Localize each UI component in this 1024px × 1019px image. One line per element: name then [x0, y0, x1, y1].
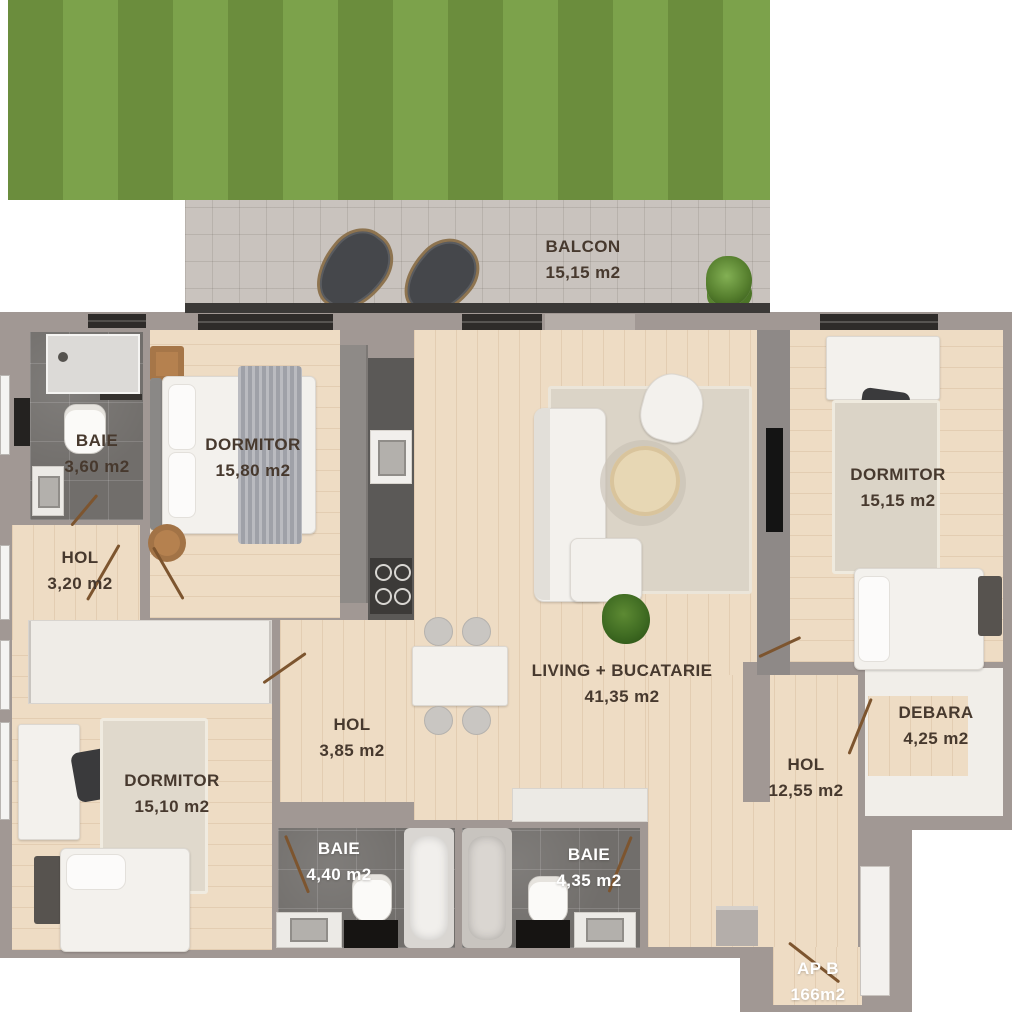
entry-cabinet: [716, 906, 758, 946]
nightstand: [978, 576, 1002, 636]
dormitor-1-closet: [340, 345, 368, 603]
label-baie-3: BAIE 4,35 m2: [556, 842, 621, 894]
dining-table: [412, 646, 508, 706]
room-name: BAIE: [556, 842, 621, 868]
room-name: LIVING + BUCATARIE: [532, 658, 713, 684]
room-name: HOL: [47, 545, 112, 571]
room-area: 12,55 m2: [768, 778, 843, 804]
label-hol-2: HOL 3,85 m2: [319, 712, 384, 764]
label-dormitor-1: DORMITOR 15,80 m2: [205, 432, 300, 484]
label-balcon: BALCON 15,15 m2: [545, 234, 620, 286]
room-area: 3,85 m2: [319, 738, 384, 764]
burner: [375, 564, 392, 581]
balcony-door: [545, 314, 635, 330]
coffee-table: [610, 446, 680, 516]
label-hol-3: HOL 12,55 m2: [768, 752, 843, 804]
sink-basin: [38, 476, 60, 508]
sofa-back: [534, 408, 550, 600]
window-living: [462, 314, 542, 330]
bathroom-cabinet: [516, 920, 570, 948]
room-name: BAIE: [306, 836, 371, 862]
room-area: 3,20 m2: [47, 571, 112, 597]
desk: [18, 724, 80, 840]
room-name: BALCON: [545, 234, 620, 260]
wardrobe: [28, 620, 272, 704]
garden-grass: [8, 0, 770, 200]
room-area: 15,15 m2: [850, 488, 945, 514]
room-name: HOL: [768, 752, 843, 778]
sink-basin: [290, 918, 328, 942]
pillow: [168, 452, 196, 518]
bathtub-inner: [468, 836, 506, 940]
label-baie-2: BAIE 4,40 m2: [306, 836, 371, 888]
room-area: 41,35 m2: [532, 684, 713, 710]
pillow: [66, 854, 126, 890]
wall-niche: [14, 398, 30, 446]
room-name: DORMITOR: [124, 768, 219, 794]
kitchen-counter-white: [512, 788, 648, 822]
burner: [394, 588, 411, 605]
shower-head: [58, 352, 68, 362]
window-dormitor-1: [198, 314, 333, 330]
room-area: 15,15 m2: [545, 260, 620, 286]
floor-plan: BALCON 15,15 m2 BAIE 3,60 m2 DORMITOR 15…: [0, 0, 1024, 1019]
room-area: 15,10 m2: [124, 794, 219, 820]
room-name: BAIE: [64, 428, 129, 454]
label-dormitor-2: DORMITOR 15,15 m2: [850, 462, 945, 514]
living-hol-divider-wall: [743, 662, 770, 802]
room-name: HOL: [319, 712, 384, 738]
window-baie-1: [88, 314, 146, 328]
apartment-total-area: 166m2: [791, 982, 846, 1008]
room-area: 15,80 m2: [205, 458, 300, 484]
window-hol-1: [0, 375, 10, 455]
balcony-parapet: [185, 303, 770, 313]
shower-glass: [100, 394, 142, 400]
dining-chair: [462, 617, 491, 646]
window-dormitor-3-a: [0, 640, 10, 710]
window-dormitor-2: [820, 314, 938, 330]
burner: [375, 588, 392, 605]
plan-cutout: [912, 830, 1024, 1019]
burner: [394, 564, 411, 581]
window-left-1: [0, 545, 10, 620]
room-area: 4,35 m2: [556, 868, 621, 894]
sofa-chaise: [570, 538, 642, 602]
dining-chair: [424, 706, 453, 735]
room-area: 4,40 m2: [306, 862, 371, 888]
room-name: DEBARA: [898, 700, 973, 726]
tv: [766, 428, 783, 532]
apartment-code: AP B: [791, 956, 846, 982]
dining-chair: [462, 706, 491, 735]
bathtub-inner: [410, 836, 448, 940]
living-plant: [602, 594, 650, 644]
window-dormitor-3-b: [0, 722, 10, 820]
kitchen-sink-basin: [378, 440, 406, 476]
label-apartment: AP B 166m2: [791, 956, 846, 1008]
sink-basin: [586, 918, 624, 942]
label-living: LIVING + BUCATARIE 41,35 m2: [532, 658, 713, 710]
pillow: [168, 384, 196, 450]
room-name: DORMITOR: [205, 432, 300, 458]
bed-headboard: [150, 378, 162, 530]
label-debara: DEBARA 4,25 m2: [898, 700, 973, 752]
room-hol-2-floor: [280, 620, 414, 802]
bathroom-cabinet: [344, 920, 398, 948]
room-area: 3,60 m2: [64, 454, 129, 480]
room-area: 4,25 m2: [898, 726, 973, 752]
room-name: DORMITOR: [850, 462, 945, 488]
dining-chair: [424, 617, 453, 646]
label-dormitor-3: DORMITOR 15,10 m2: [124, 768, 219, 820]
shower-tray: [46, 334, 140, 394]
pillow: [858, 576, 890, 662]
label-hol-1: HOL 3,20 m2: [47, 545, 112, 597]
entry-door-panel: [860, 866, 890, 996]
round-stool: [148, 524, 186, 562]
nightstand: [34, 856, 62, 924]
label-baie-1: BAIE 3,60 m2: [64, 428, 129, 480]
